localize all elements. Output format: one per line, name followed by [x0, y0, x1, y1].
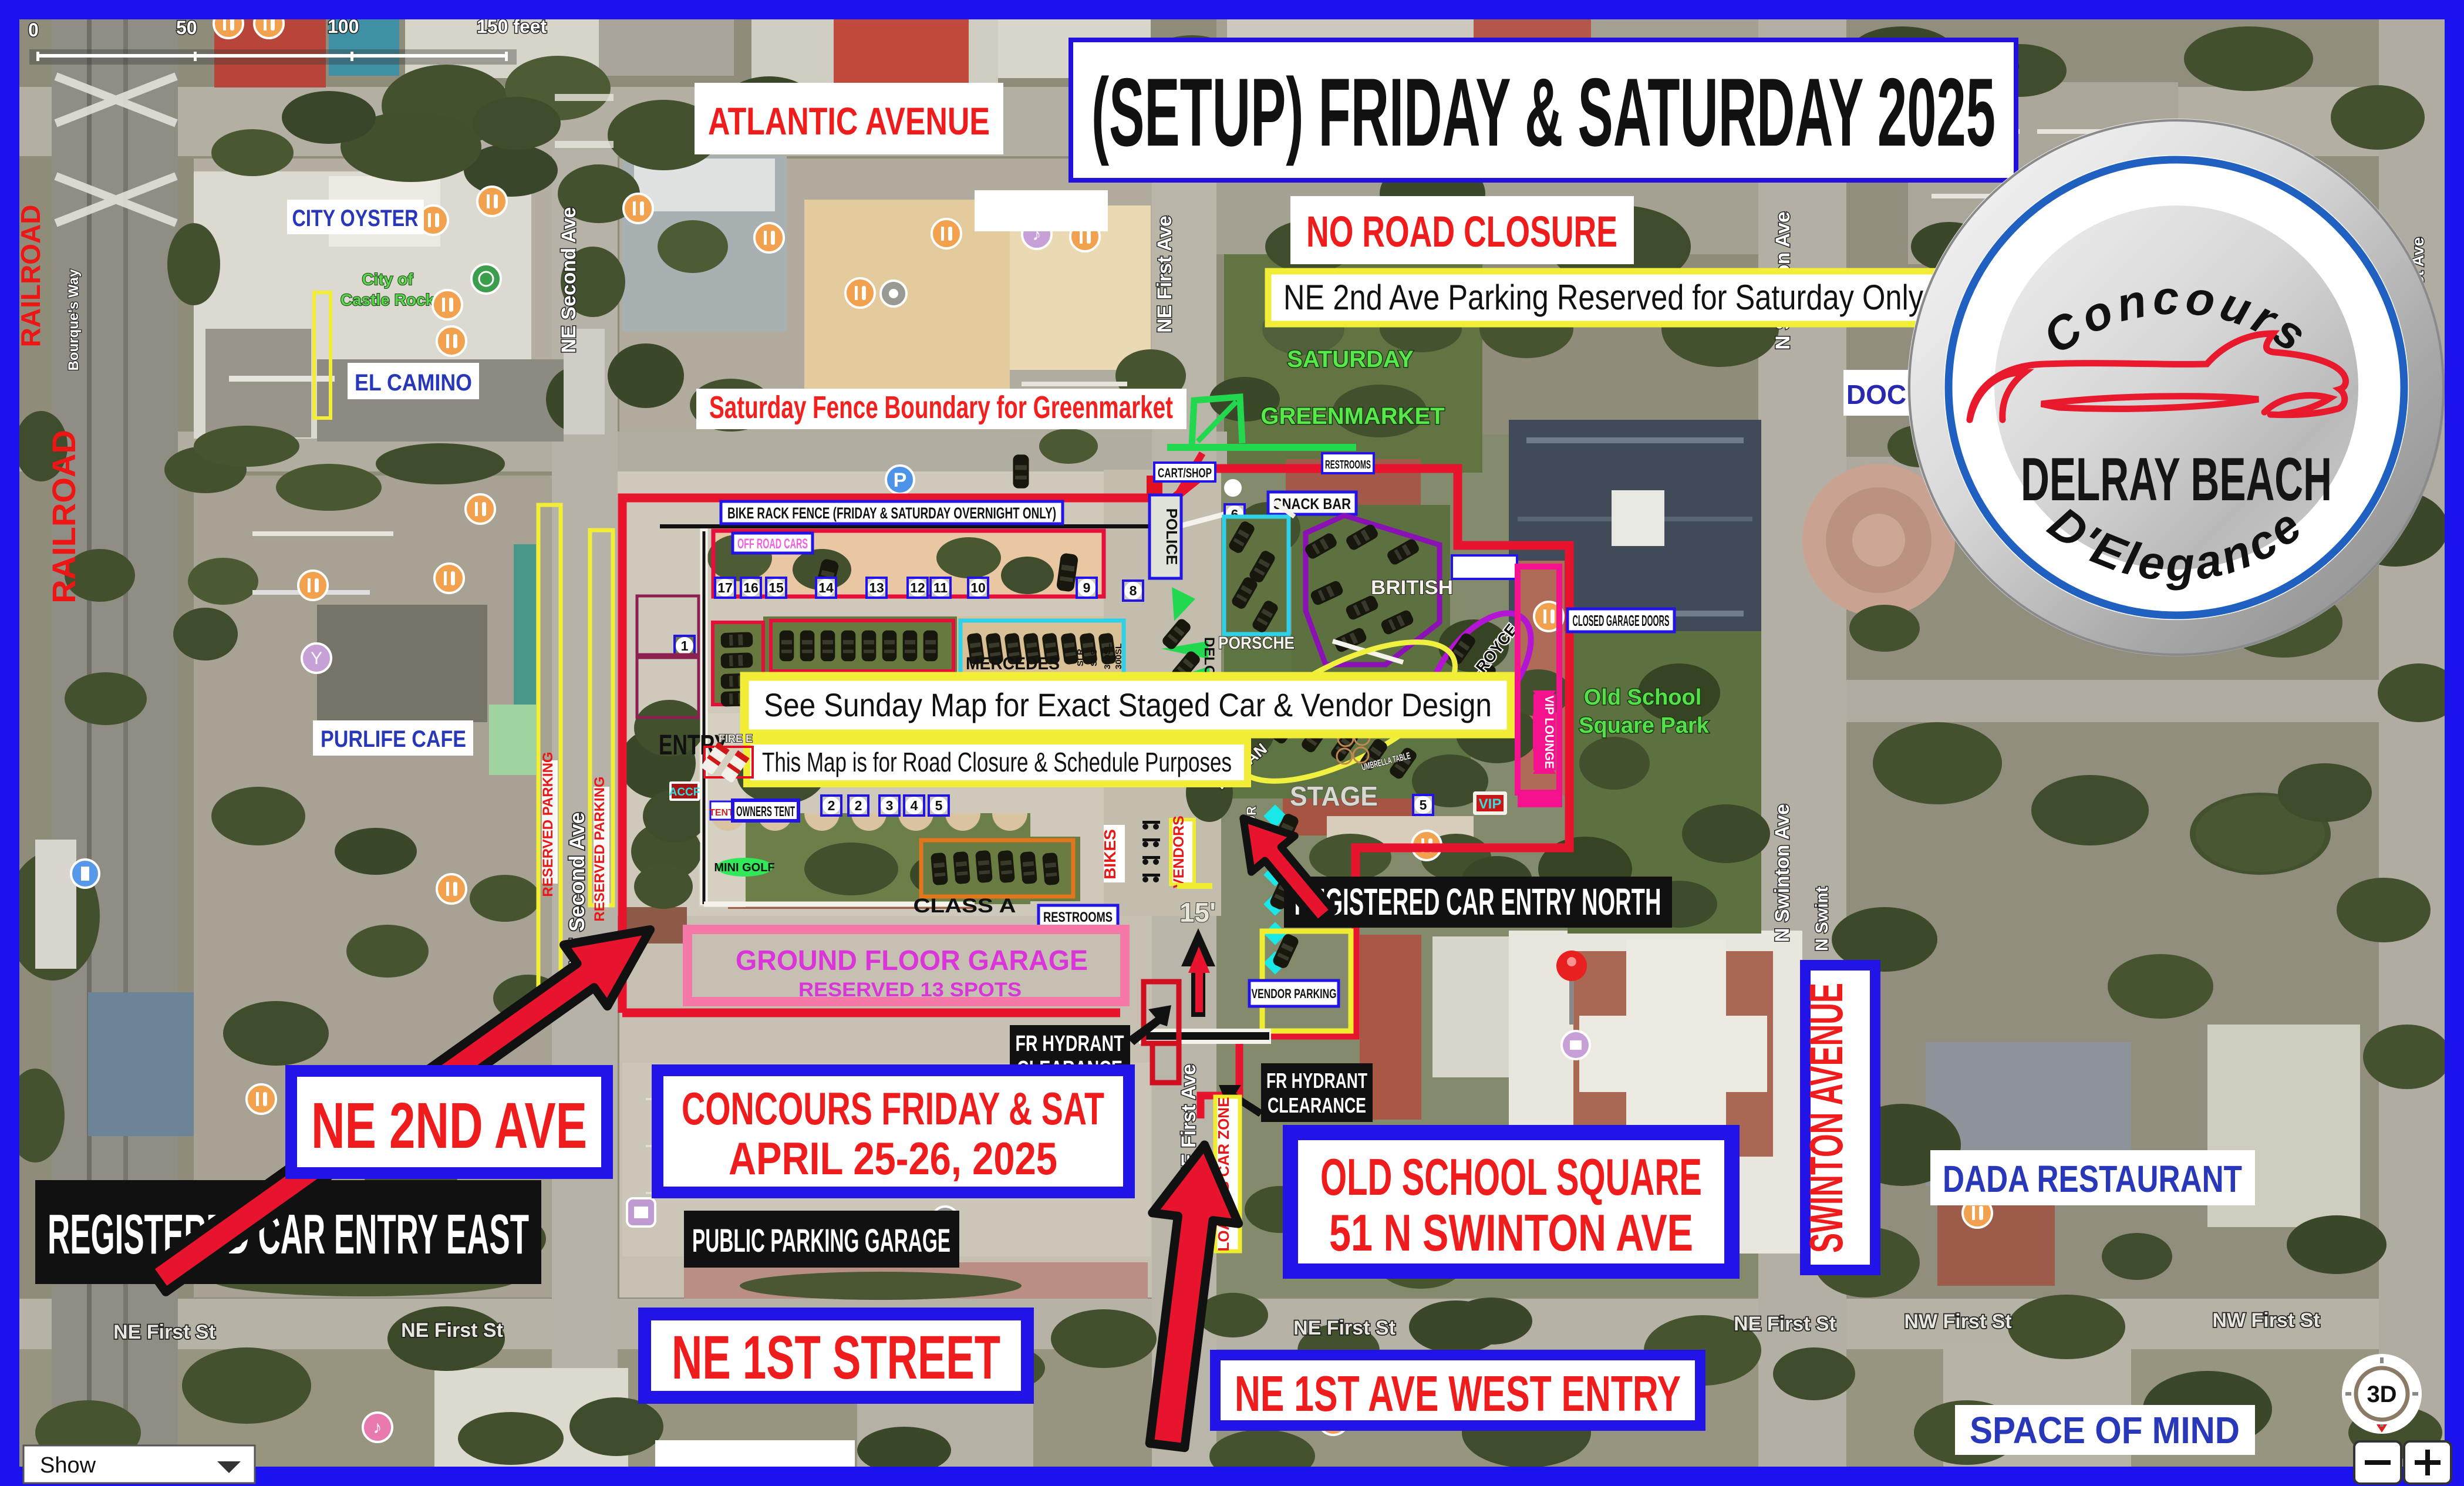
svg-text:BIKE RACK FENCE (FRIDAY & SATU: BIKE RACK FENCE (FRIDAY & SATURDAY OVERN… [727, 504, 1056, 522]
svg-text:MERCEDES: MERCEDES [966, 654, 1060, 673]
svg-text:300SL: 300SL [1114, 643, 1124, 669]
svg-text:STAGE: STAGE [1290, 781, 1378, 811]
svg-text:RAILROAD: RAILROAD [45, 430, 82, 604]
svg-text:REGISTERED CAR ENTRY EAST: REGISTERED CAR ENTRY EAST [48, 1203, 529, 1266]
svg-text:N Swint: N Swint [1812, 887, 1832, 951]
svg-text:NE First St: NE First St [401, 1319, 503, 1342]
svg-text:TENT: TENT [709, 808, 734, 818]
svg-text:5: 5 [1420, 797, 1427, 813]
svg-text:DELRAY BEACH: DELRAY BEACH [2021, 446, 2332, 514]
svg-text:NE 1ST AVE WEST ENTRY: NE 1ST AVE WEST ENTRY [1235, 1366, 1681, 1422]
svg-text:NO ROAD CLOSURE: NO ROAD CLOSURE [1306, 207, 1617, 256]
svg-text:RESERVED PARKING: RESERVED PARKING [592, 776, 608, 921]
svg-text:CLOSED GARAGE DOORS: CLOSED GARAGE DOORS [1573, 612, 1670, 629]
svg-text:SWINTON AVENUE: SWINTON AVENUE [1800, 983, 1852, 1253]
svg-text:OLD SCHOOL SQUARE: OLD SCHOOL SQUARE [1320, 1148, 1702, 1206]
svg-text:RESTROOMS: RESTROOMS [1325, 459, 1371, 471]
svg-text:10: 10 [970, 580, 986, 595]
svg-text:BRITISH: BRITISH [1371, 577, 1453, 599]
svg-text:NE First St: NE First St [113, 1321, 215, 1343]
svg-text:DOC: DOC [1846, 379, 1906, 410]
svg-text:12: 12 [910, 580, 925, 595]
svg-text:Show: Show [40, 1453, 96, 1478]
svg-text:NE First St: NE First St [1293, 1317, 1396, 1339]
svg-text:ACCF: ACCF [669, 786, 700, 798]
svg-text:ATLANTIC AVENUE: ATLANTIC AVENUE [708, 99, 990, 143]
svg-text:300SL: 300SL [1103, 643, 1113, 669]
svg-text:RAILROAD: RAILROAD [15, 205, 46, 348]
svg-text:11: 11 [933, 580, 948, 595]
svg-text:OFF ROAD CARS: OFF ROAD CARS [737, 536, 808, 552]
svg-text:SPACE OF MIND: SPACE OF MIND [1970, 1409, 2240, 1451]
svg-text:(SETUP) FRIDAY & SATURDAY 2025: (SETUP) FRIDAY & SATURDAY 2025 [1091, 58, 1996, 166]
svg-text:Old School: Old School [1584, 685, 1702, 710]
svg-text:NE First St: NE First St [1734, 1313, 1836, 1335]
svg-text:CART/SHOP: CART/SHOP [1158, 466, 1212, 480]
svg-text:8: 8 [1130, 583, 1137, 598]
svg-text:SLS: SLS [1089, 649, 1099, 666]
svg-text:RESTROOMS: RESTROOMS [1043, 909, 1113, 925]
svg-text:CONCOURS FRIDAY & SAT: CONCOURS FRIDAY & SAT [682, 1083, 1104, 1134]
svg-text:CITY OYSTER: CITY OYSTER [292, 205, 419, 231]
svg-text:3: 3 [886, 798, 894, 813]
svg-text:CLASS A: CLASS A [914, 895, 1016, 917]
svg-text:CLEARANCE: CLEARANCE [1268, 1093, 1366, 1117]
svg-text:Y: Y [311, 649, 322, 668]
svg-text:9: 9 [1083, 580, 1091, 595]
svg-text:Castle Rock: Castle Rock [341, 291, 435, 309]
svg-text:4: 4 [911, 798, 918, 813]
svg-text:VIP LOUNGE: VIP LOUNGE [1542, 696, 1556, 769]
svg-text:5: 5 [935, 798, 943, 813]
svg-text:SLR: SLR [1076, 649, 1086, 666]
svg-text:BIKES: BIKES [1101, 829, 1119, 880]
svg-text:MINI GOLF: MINI GOLF [714, 861, 774, 874]
svg-text:Saturday Fence Boundary for Gr: Saturday Fence Boundary for Greenmarket [709, 390, 1173, 425]
svg-text:NE First Ave: NE First Ave [1154, 215, 1176, 333]
svg-text:PORSCHE: PORSCHE [1218, 634, 1295, 653]
svg-text:♪: ♪ [373, 1418, 382, 1437]
svg-text:1: 1 [681, 638, 689, 653]
svg-text:NE 1ST STREET: NE 1ST STREET [672, 1323, 1000, 1392]
svg-text:NE 2ND AVE: NE 2ND AVE [311, 1090, 587, 1162]
svg-text:See Sunday Map for Exact Stage: See Sunday Map for Exact Staged Car & Ve… [764, 686, 1492, 723]
svg-text:Square Park: Square Park [1579, 713, 1710, 738]
svg-text:2: 2 [855, 798, 862, 813]
svg-text:NW First St: NW First St [2212, 1309, 2320, 1332]
svg-text:VIP: VIP [1479, 796, 1502, 812]
svg-text:17: 17 [717, 580, 733, 595]
svg-text:PURLIFE CAFE: PURLIFE CAFE [321, 726, 466, 752]
svg-text:2: 2 [828, 798, 835, 813]
svg-text:NW First St: NW First St [1904, 1310, 2011, 1333]
svg-text:RESERVED PARKING: RESERVED PARKING [540, 752, 556, 897]
svg-text:DADA RESTAURANT: DADA RESTAURANT [1943, 1158, 2242, 1200]
svg-text:NE 2nd Ave Parking Reserved fo: NE 2nd Ave Parking Reserved for Saturday… [1283, 278, 1923, 317]
svg-text:FR HYDRANT: FR HYDRANT [1016, 1032, 1124, 1056]
svg-text:Bourque's Way: Bourque's Way [66, 269, 82, 370]
svg-text:13: 13 [869, 580, 884, 595]
svg-text:14: 14 [818, 580, 834, 595]
svg-text:This Map is for Road Closure &: This Map is for Road Closure & Schedule … [762, 747, 1232, 777]
svg-text:16: 16 [743, 580, 759, 595]
svg-text:N Swinton Ave: N Swinton Ave [1771, 804, 1794, 942]
svg-text:APRIL 25-26, 2025: APRIL 25-26, 2025 [729, 1133, 1057, 1184]
svg-text:GROUND FLOOR GARAGE: GROUND FLOOR GARAGE [736, 945, 1088, 976]
svg-text:15': 15' [1179, 897, 1216, 928]
svg-text:51 N SWINTON AVE: 51 N SWINTON AVE [1329, 1204, 1693, 1262]
svg-text:RESERVED 13 SPOTS: RESERVED 13 SPOTS [798, 979, 1022, 1001]
svg-text:NE Second Ave: NE Second Ave [558, 207, 580, 353]
svg-text:OWNERS TENT: OWNERS TENT [736, 804, 795, 820]
svg-text:GREENMARKET: GREENMARKET [1260, 403, 1444, 429]
svg-text:VENDORS: VENDORS [1171, 816, 1187, 888]
svg-text:POLICE: POLICE [1163, 508, 1181, 565]
svg-text:FIRE E: FIRE E [719, 733, 753, 744]
svg-text:50: 50 [176, 17, 197, 38]
svg-text:PUBLIC PARKING GARAGE: PUBLIC PARKING GARAGE [692, 1222, 950, 1259]
svg-text:SATURDAY: SATURDAY [1287, 346, 1414, 372]
svg-text:VENDOR PARKING: VENDOR PARKING [1252, 986, 1337, 1001]
svg-text:FR HYDRANT: FR HYDRANT [1266, 1069, 1367, 1093]
svg-text:3D: 3D [2367, 1381, 2396, 1407]
svg-text:15: 15 [768, 580, 784, 595]
svg-text:City of: City of [362, 270, 413, 288]
svg-text:REGISTERED CAR ENTRY NORTH: REGISTERED CAR ENTRY NORTH [1295, 881, 1661, 923]
svg-text:P: P [894, 469, 907, 491]
svg-text:0: 0 [28, 19, 39, 41]
svg-text:EL CAMINO: EL CAMINO [355, 370, 472, 396]
